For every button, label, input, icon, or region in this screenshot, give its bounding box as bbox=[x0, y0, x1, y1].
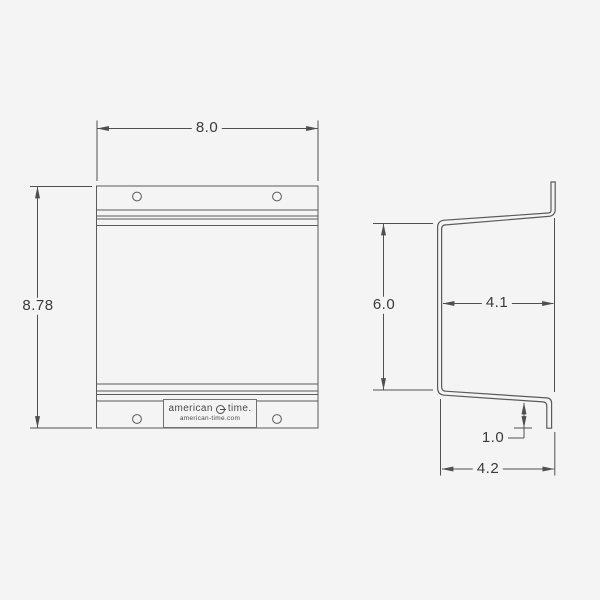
logo-brand-name2: time. bbox=[228, 404, 252, 414]
logo-brand: american time. bbox=[169, 404, 252, 414]
logo-plate: american time. american-time.com bbox=[163, 399, 257, 428]
front-width-label: 8.0 bbox=[192, 120, 222, 137]
hole-top-right bbox=[273, 192, 282, 201]
front-height-label: 8.78 bbox=[18, 298, 57, 315]
tab-height-label: 1.0 bbox=[478, 430, 508, 447]
lower-depth-label: 4.2 bbox=[473, 461, 503, 478]
logo-website: american-time.com bbox=[180, 416, 240, 423]
hole-top-left bbox=[133, 192, 142, 201]
bracket-dimension-drawing: 8.0 8.78 6.0 4.1 1.0 4.2 american time. … bbox=[0, 0, 600, 600]
front-view bbox=[97, 186, 319, 428]
hole-bottom-right bbox=[273, 415, 282, 424]
logo-brand-name: american bbox=[169, 404, 213, 414]
side-height-label: 6.0 bbox=[369, 297, 399, 314]
hole-bottom-left bbox=[133, 415, 142, 424]
front-view-outline bbox=[97, 186, 319, 428]
mounting-holes bbox=[133, 192, 282, 423]
front-view-upper-bend-lines bbox=[97, 210, 319, 226]
upper-depth-label: 4.1 bbox=[482, 295, 512, 312]
dim-tab-height bbox=[508, 403, 532, 438]
clock-icon bbox=[216, 405, 225, 414]
